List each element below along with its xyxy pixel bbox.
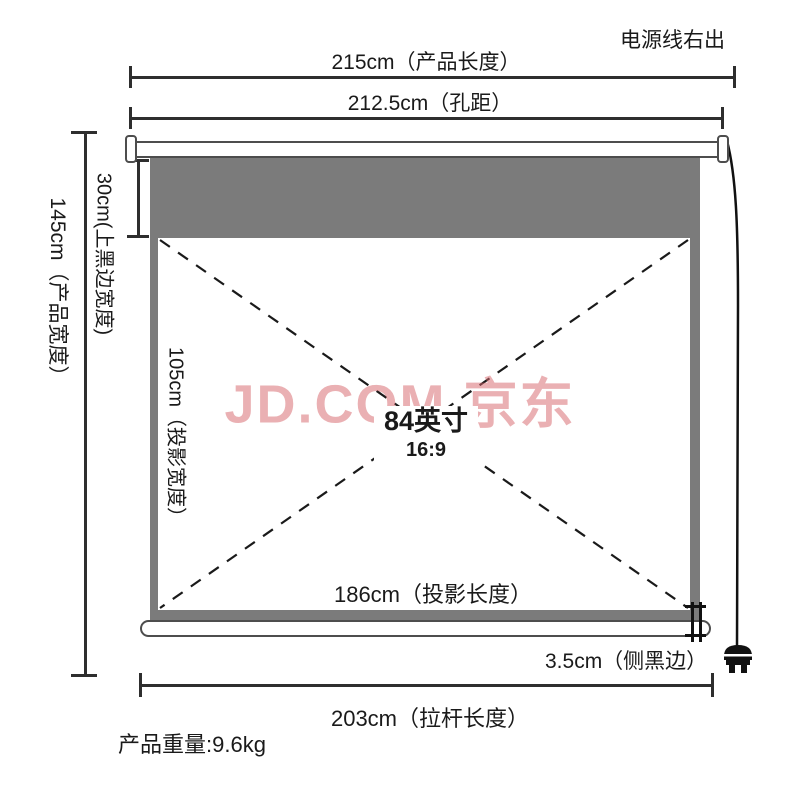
power-plug-icon (723, 645, 753, 673)
roller-end-cap-left (125, 135, 137, 163)
dim-label-projection-length: 186cm（投影长度） (334, 577, 532, 609)
screen-size-block: 84英寸 16:9 (374, 406, 478, 465)
screen-size-label: 84英寸 (384, 406, 468, 437)
product-dimension-diagram: 电源线右出 215cm（产品长度） 212.5cm（孔距） 145cm（产品宽度… (0, 0, 800, 800)
roller-bar (133, 141, 721, 158)
dim-line-rod-length (140, 684, 713, 687)
power-cable-line (727, 141, 738, 646)
pull-rod-bar (140, 620, 711, 637)
side-edge-bracket-tick (685, 605, 706, 608)
roller-end-cap-right (717, 135, 729, 163)
side-edge-bracket-tick (685, 634, 706, 637)
dim-label-projection-width: 105cm（投影宽度） (164, 347, 193, 527)
aspect-ratio-label: 16:9 (384, 437, 468, 463)
